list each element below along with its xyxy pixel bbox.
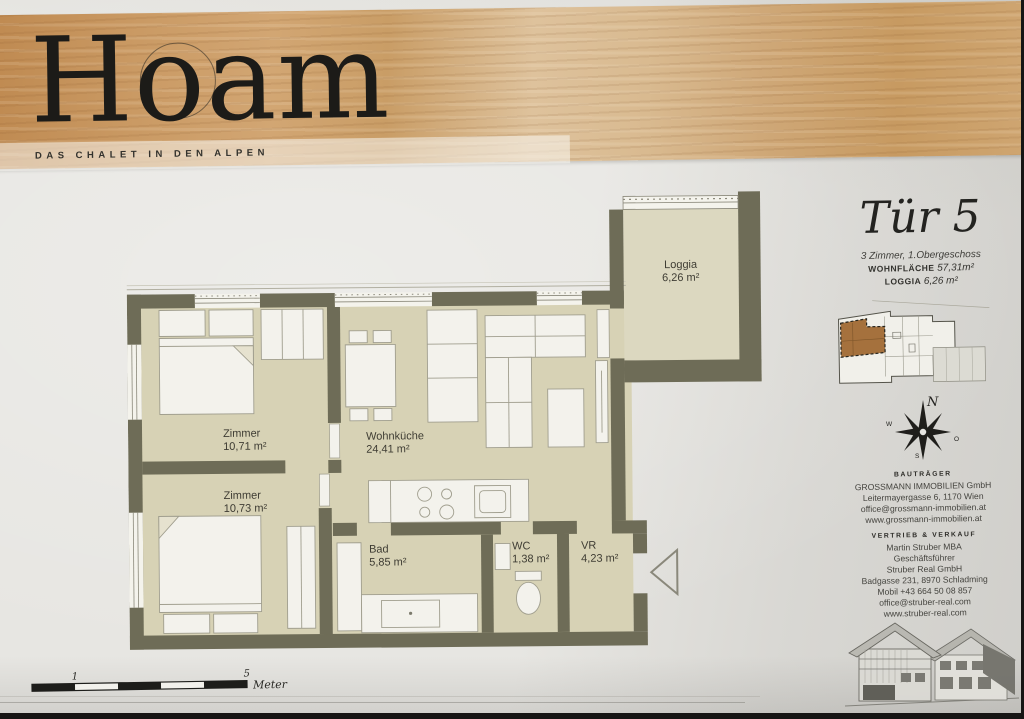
divider [0, 696, 760, 697]
toilet-symbol [515, 571, 541, 614]
room-label-area: 4,23 m² [581, 552, 619, 564]
kitchen-cabinet-symbol [427, 310, 478, 422]
compass-south-label: S [915, 453, 920, 460]
scale-unit-label: Meter [252, 678, 288, 692]
unit-loggia-area: LOGGIA 6,26 m² [819, 274, 1021, 289]
unit-title: Tür 5 [817, 188, 1021, 248]
room-label-name: Bad [369, 544, 389, 556]
room-door [329, 424, 339, 458]
basin-symbol [495, 543, 510, 569]
brand-title: Hoam [29, 6, 391, 151]
room-label-name: VR [581, 540, 596, 552]
room-label-name: WC [512, 540, 530, 552]
photo-frame: Hoam DAS CHALET IN DEN ALPEN Tür 5 3 Zim… [0, 0, 1024, 719]
room-label-area: 5,85 m² [369, 556, 407, 568]
contact-line: www.grossmann-immobilien.at [828, 512, 1020, 526]
entrance-arrow-icon [651, 550, 677, 594]
room-label-name: Zimmer [224, 490, 262, 502]
room-label-area: 10,73 m² [224, 503, 268, 515]
scale-bar: 1 5 Meter [25, 666, 306, 705]
brand-tagline: DAS CHALET IN DEN ALPEN [35, 147, 269, 161]
unit-info: Tür 5 3 Zimmer, 1.Obergeschoss WOHNFLÄCH… [817, 188, 1021, 289]
unit-subtitle: 3 Zimmer, 1.Obergeschoss [818, 248, 1021, 263]
room-label-area: 24,41 m² [366, 443, 410, 455]
compass-icon: N W O S [885, 392, 960, 467]
room-door [319, 474, 329, 506]
divider [0, 702, 745, 703]
room-label-area: 10,71 m² [223, 441, 267, 453]
kitchen-counter-symbol [368, 479, 528, 522]
compass-north-label: N [926, 395, 939, 410]
room-label-name: Zimmer [223, 428, 261, 440]
chalet-sketch [843, 597, 1021, 712]
loggia-floor [623, 208, 739, 362]
bath-cabinet-symbol [337, 543, 362, 631]
room-label-area: 6,26 m² [662, 272, 700, 284]
wardrobe-symbol [261, 309, 323, 360]
loggia-railing [623, 195, 738, 209]
header-banner: Hoam DAS CHALET IN DEN ALPEN [0, 1, 1021, 169]
floor-plan: Zimmer 10,71 m² Wohnküche 24,41 m² Zimme… [126, 189, 765, 665]
scale-tick-5: 5 [244, 669, 251, 680]
brochure-page: Hoam DAS CHALET IN DEN ALPEN Tür 5 3 Zim… [0, 0, 1021, 713]
bath-counter-symbol [361, 594, 477, 633]
compass-east-label: O [954, 436, 959, 443]
unit-living-area: WOHNFLÄCHE 57,31m² [818, 261, 1021, 276]
coffee-table-symbol [548, 389, 585, 447]
scale-tick-1: 1 [72, 672, 79, 683]
loggia-door [597, 310, 609, 358]
site-overview-plan [832, 295, 992, 398]
room-label-name: Loggia [664, 259, 698, 271]
room-label-name: Wohnküche [366, 430, 424, 443]
compass-west-label: W [886, 421, 893, 428]
room-label-area: 1,38 m² [512, 553, 550, 565]
tv-board-symbol [595, 361, 608, 443]
